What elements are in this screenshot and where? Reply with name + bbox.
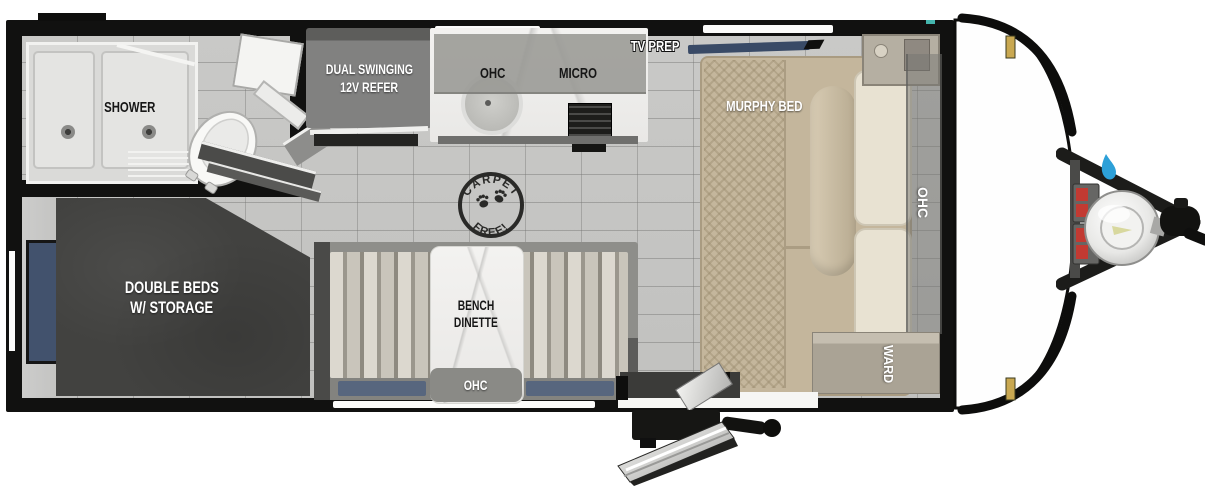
cap-marker-bottom: [1006, 378, 1015, 400]
window-strip-rear: [9, 251, 15, 351]
carpet-free-badge: CARPET FREE!: [452, 166, 530, 244]
svg-text:CARPET: CARPET: [461, 174, 522, 199]
window-strip-top-murphy: [703, 25, 833, 33]
kitchen-ohc-label: OHC: [458, 64, 528, 82]
sink-drain: [485, 100, 491, 106]
refrigerator-base: [314, 134, 418, 146]
sofa-cushion: [854, 70, 912, 226]
dinette-label: BENCH DINETTE: [430, 292, 522, 336]
svg-text:FREE!: FREE!: [470, 221, 511, 240]
shower-drain: [142, 125, 156, 139]
paw-print-icon: [475, 188, 508, 209]
cap-marker-top: [1006, 36, 1015, 58]
dinette-window-right: [526, 381, 614, 396]
micro-label: MICRO: [540, 64, 616, 82]
wardrobe-label: WARD: [876, 338, 900, 390]
refrigerator-label: DUAL SWINGING 12V REFER: [306, 54, 432, 102]
knob: [874, 44, 888, 58]
shower-drain: [61, 125, 75, 139]
dinette-ohc-label: OHC: [430, 375, 522, 395]
propane-flame-icon: [1102, 154, 1116, 179]
floorplan-canvas: SHOWER DOUBLE BEDS W/ STORAGE DUAL SWING…: [0, 0, 1205, 487]
dinette-end-left: [314, 242, 330, 400]
double-beds-label: DOUBLE BEDS W/ STORAGE: [92, 274, 252, 322]
roof-vent: [38, 13, 106, 21]
entry-bracket-left: [616, 376, 628, 400]
dinette-window-left: [338, 381, 426, 396]
counter-base: [438, 136, 638, 144]
bedroom-window: [26, 240, 60, 364]
teal-mark: [926, 20, 935, 24]
hitch-assembly: [1056, 140, 1205, 298]
murphy-bed-label: MURPHY BED: [706, 96, 822, 116]
entry-steps: [596, 398, 800, 487]
tv-prep-label: TV PREP: [618, 36, 692, 56]
